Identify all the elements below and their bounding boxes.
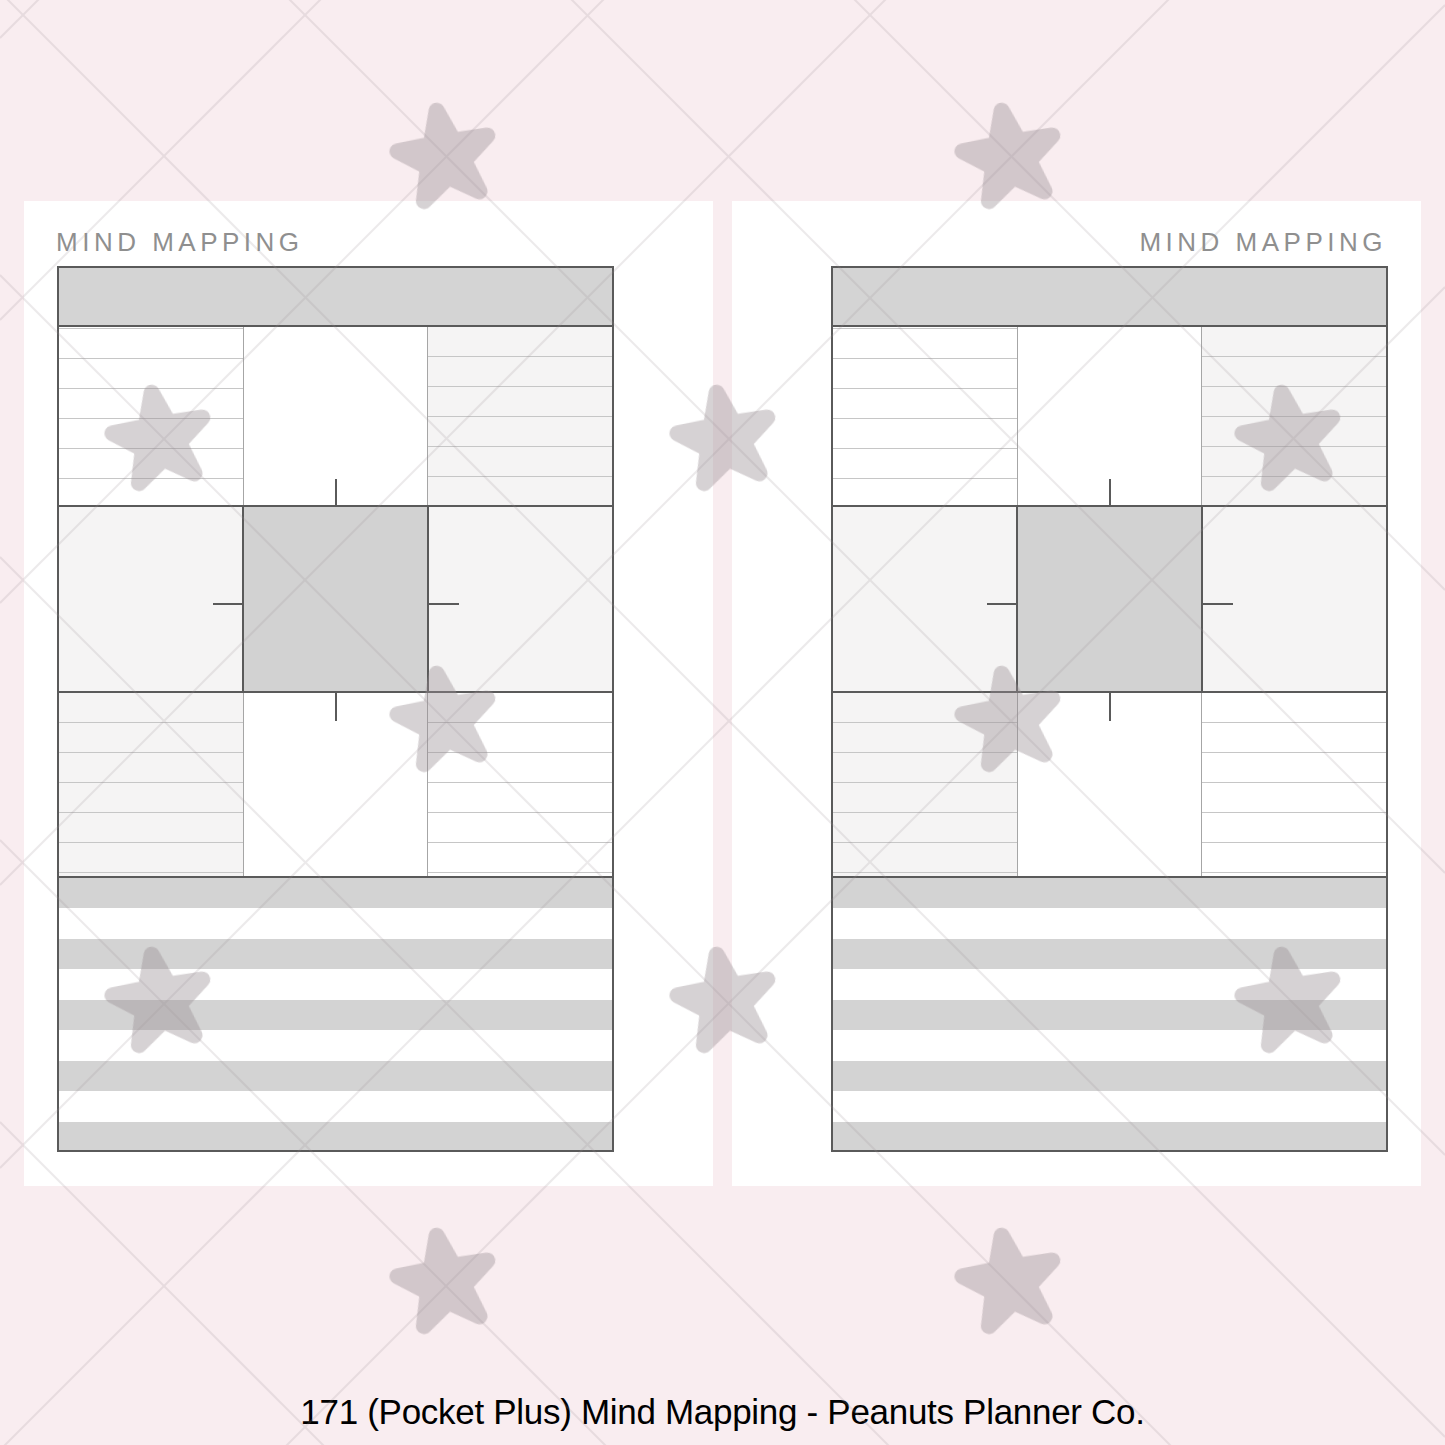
- grid-divider: [57, 325, 614, 327]
- connector-tick-right: [1201, 603, 1233, 605]
- connector-tick-bottom: [335, 691, 337, 721]
- grid-header-bar: [57, 266, 614, 327]
- notes-cell-bottom-right: [428, 693, 614, 878]
- grid-divider: [57, 876, 614, 878]
- connector-tick-bottom: [1109, 691, 1111, 721]
- connector-tick-top: [1109, 479, 1111, 507]
- star-icon: [957, 1228, 1062, 1329]
- connector-tick-right: [427, 603, 459, 605]
- star-icon: [392, 103, 497, 204]
- notes-cell-bottom-right: [1202, 693, 1388, 878]
- notes-cell-top-left: [831, 327, 1017, 507]
- page-title: MIND MAPPING: [1139, 227, 1387, 258]
- central-topic-cell: [242, 505, 429, 693]
- striped-notes-section: [57, 878, 614, 1152]
- grid-divider: [831, 876, 1388, 878]
- central-topic-cell: [1016, 505, 1203, 693]
- page-title: MIND MAPPING: [56, 227, 304, 258]
- notes-cell-top-right: [428, 327, 614, 507]
- planner-page-right: MIND MAPPING: [732, 201, 1421, 1186]
- connector-tick-left: [987, 603, 1018, 605]
- notes-cell-bottom-left: [57, 693, 243, 878]
- star-icon: [392, 1228, 497, 1329]
- planner-spread-image: MIND MAPPING: [0, 0, 1445, 1445]
- connector-tick-top: [335, 479, 337, 507]
- grid-header-bar: [831, 266, 1388, 327]
- mind-map-grid: [831, 266, 1388, 1152]
- notes-cell-top-left: [57, 327, 243, 507]
- planner-page-left: MIND MAPPING: [24, 201, 713, 1186]
- mind-map-grid: [57, 266, 614, 1152]
- star-icon: [957, 103, 1062, 204]
- notes-cell-bottom-left: [831, 693, 1017, 878]
- striped-notes-section: [831, 878, 1388, 1152]
- connector-tick-left: [213, 603, 244, 605]
- grid-divider: [831, 325, 1388, 327]
- notes-cell-top-right: [1202, 327, 1388, 507]
- product-caption: 171 (Pocket Plus) Mind Mapping - Peanuts…: [0, 1392, 1445, 1432]
